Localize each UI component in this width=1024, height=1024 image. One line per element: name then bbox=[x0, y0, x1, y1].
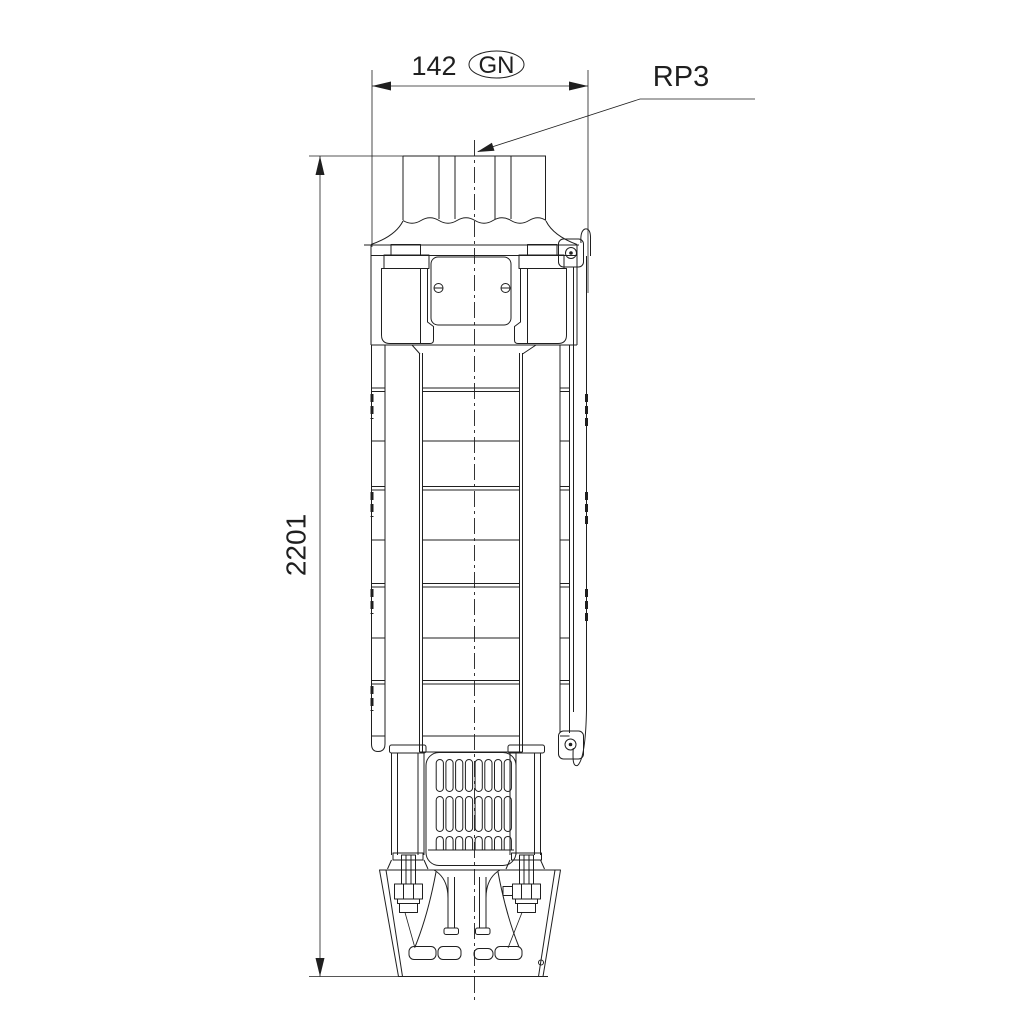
pump-drawing bbox=[364, 156, 591, 977]
motor-foot-pad bbox=[409, 947, 436, 960]
technical-drawing-page: 142 GN 2201 RP3 bbox=[0, 0, 1024, 1024]
strap-strip-left bbox=[372, 345, 386, 752]
gn-badge-label: GN bbox=[479, 52, 515, 79]
cable-clamp-left bbox=[382, 245, 434, 344]
motor-foot-pad bbox=[438, 947, 461, 960]
stage-body-edges bbox=[420, 353, 523, 752]
strainer-slot-column bbox=[475, 760, 482, 851]
guard-band bbox=[574, 256, 587, 712]
suction-strainer bbox=[426, 753, 516, 866]
flange-lines bbox=[364, 245, 579, 256]
hex-bolt-left bbox=[395, 855, 423, 948]
motor-foot-pad bbox=[495, 947, 522, 960]
leader-arrow-icon bbox=[477, 143, 495, 152]
motor-inner-slopes bbox=[386, 870, 555, 977]
valve-casing bbox=[364, 245, 579, 355]
right-strip-ticks bbox=[560, 388, 570, 736]
strainer-slot-column bbox=[436, 760, 443, 851]
strainer-slot-column bbox=[456, 760, 463, 851]
motor-outline bbox=[380, 870, 561, 977]
motor-center-tube bbox=[448, 877, 486, 928]
guard-bottom-taper bbox=[573, 710, 587, 766]
arrow-up-icon bbox=[316, 156, 325, 175]
motor-section bbox=[380, 870, 561, 977]
guard-strip-right bbox=[560, 345, 570, 733]
stage-section bbox=[372, 353, 570, 752]
top-connector bbox=[371, 156, 577, 245]
arrow-down-icon bbox=[316, 958, 325, 977]
height-dim-value: 2201 bbox=[281, 514, 312, 576]
strainer-slot-column bbox=[465, 760, 472, 851]
thread-label: RP3 bbox=[653, 61, 709, 93]
shoulder-left bbox=[371, 221, 403, 245]
leader-line bbox=[478, 99, 755, 152]
motor-foot-pad bbox=[474, 949, 493, 960]
height-extension-lines bbox=[309, 156, 403, 977]
motor-fillets bbox=[415, 870, 519, 947]
cable-guard bbox=[559, 229, 591, 766]
thread-callout: RP3 bbox=[477, 61, 755, 152]
pump-dimensional-drawing: 142 GN 2201 RP3 bbox=[0, 0, 1024, 1024]
strainer-slot-column bbox=[495, 760, 502, 851]
casing-chamfers bbox=[412, 345, 536, 354]
casing-sides bbox=[371, 245, 577, 345]
hex-bolt-right bbox=[503, 855, 541, 948]
stage-chamber-lines bbox=[423, 388, 519, 736]
guard-top-hook bbox=[581, 229, 591, 256]
arrow-left-icon bbox=[372, 82, 391, 91]
nameplate-outline bbox=[431, 257, 511, 325]
strainer-outline bbox=[426, 753, 516, 866]
width-extension-lines bbox=[372, 70, 588, 293]
strainer-slot-column bbox=[446, 760, 453, 851]
width-dim-value: 142 bbox=[411, 51, 456, 81]
leg-left bbox=[388, 745, 429, 869]
left-strip-ticks bbox=[372, 388, 386, 736]
nameplate bbox=[431, 257, 511, 325]
arrow-right-icon bbox=[569, 82, 588, 91]
strainer-slot-column bbox=[485, 760, 492, 851]
shoulder-right bbox=[546, 221, 577, 245]
